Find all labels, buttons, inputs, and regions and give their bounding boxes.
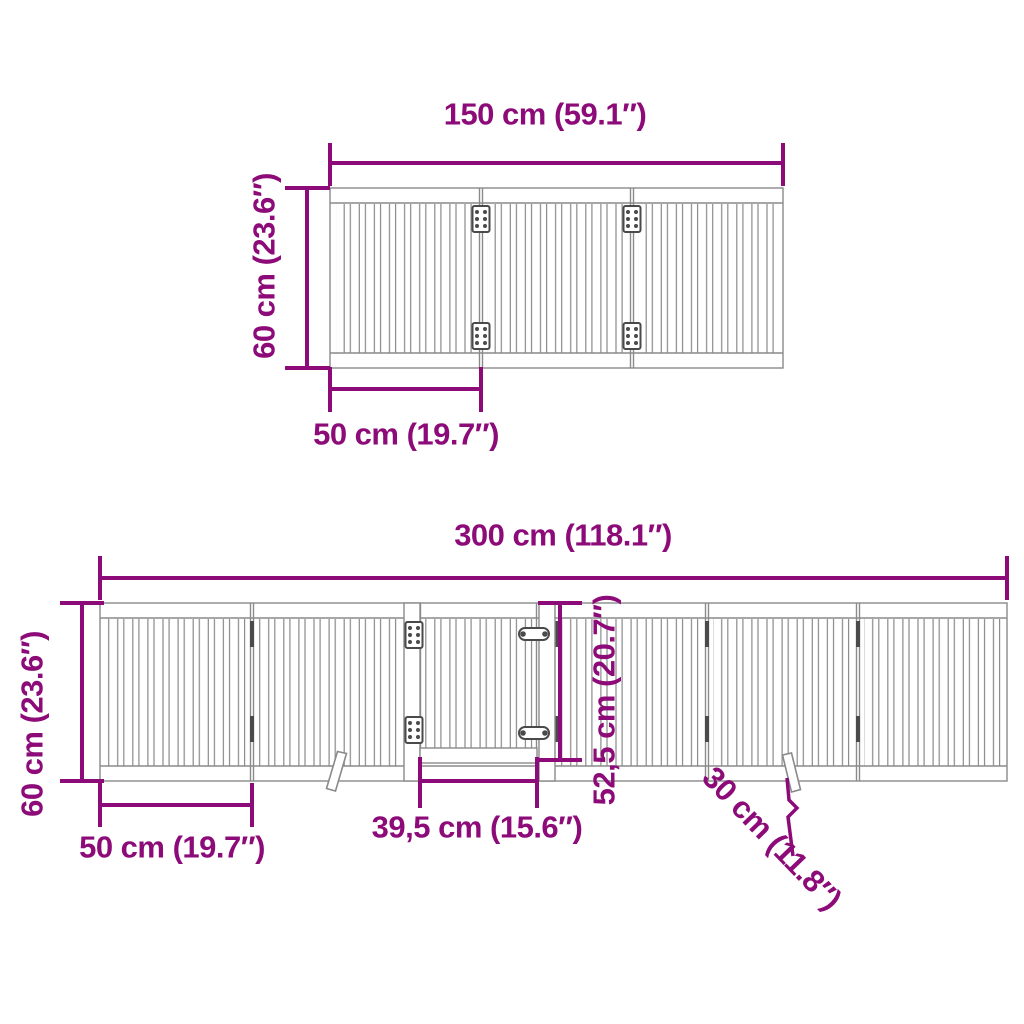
bottom-panel-width-label: 50 cm (19.7″) xyxy=(79,832,265,863)
hinge-icon xyxy=(473,323,490,349)
door-width-label: 39,5 cm (15.6″) xyxy=(372,812,583,843)
dimension-line-panel-width xyxy=(100,783,252,827)
dimension-diagram: 150 cm (59.1″) 60 cm (23.6″) 50 cm (19.7… xyxy=(0,0,1024,1024)
gate-panel xyxy=(864,619,1001,766)
dimension-line-height xyxy=(60,603,104,781)
gate-panel xyxy=(106,619,246,766)
gate-panel xyxy=(258,619,398,766)
bottom-total-width-label: 300 cm (118.1″) xyxy=(454,520,672,551)
latch-icon xyxy=(519,628,549,640)
hinge-icon xyxy=(624,206,641,232)
hinge-icon xyxy=(473,206,490,232)
gate-panel xyxy=(638,204,779,353)
top-height-label: 60 cm (23.6″) xyxy=(249,173,280,359)
dimension-line-height xyxy=(285,188,330,368)
bottom-gate-illustration xyxy=(100,603,1007,792)
hinge-icon xyxy=(406,622,423,648)
door-panel xyxy=(420,603,537,763)
door-height-label: 52,5 cm (20.7″) xyxy=(589,595,620,806)
bottom-height-label: 60 cm (23.6″) xyxy=(17,631,48,817)
top-panel-width-label: 50 cm (19.7″) xyxy=(313,419,499,450)
dimension-line-panel-width xyxy=(330,367,481,412)
gate-panel xyxy=(561,619,701,766)
gate-panel xyxy=(336,204,477,353)
gate-panel xyxy=(487,204,628,353)
top-gate-illustration xyxy=(330,188,783,368)
hinge-icon xyxy=(406,717,423,743)
gate-illustrations xyxy=(0,0,1024,1024)
dimension-line-total-width xyxy=(330,143,783,186)
latch-icon xyxy=(519,727,549,739)
gate-panel xyxy=(713,619,853,766)
dimension-line-total-width xyxy=(100,556,1007,600)
hinge-icon xyxy=(624,323,641,349)
top-total-width-label: 150 cm (59.1″) xyxy=(444,99,647,130)
